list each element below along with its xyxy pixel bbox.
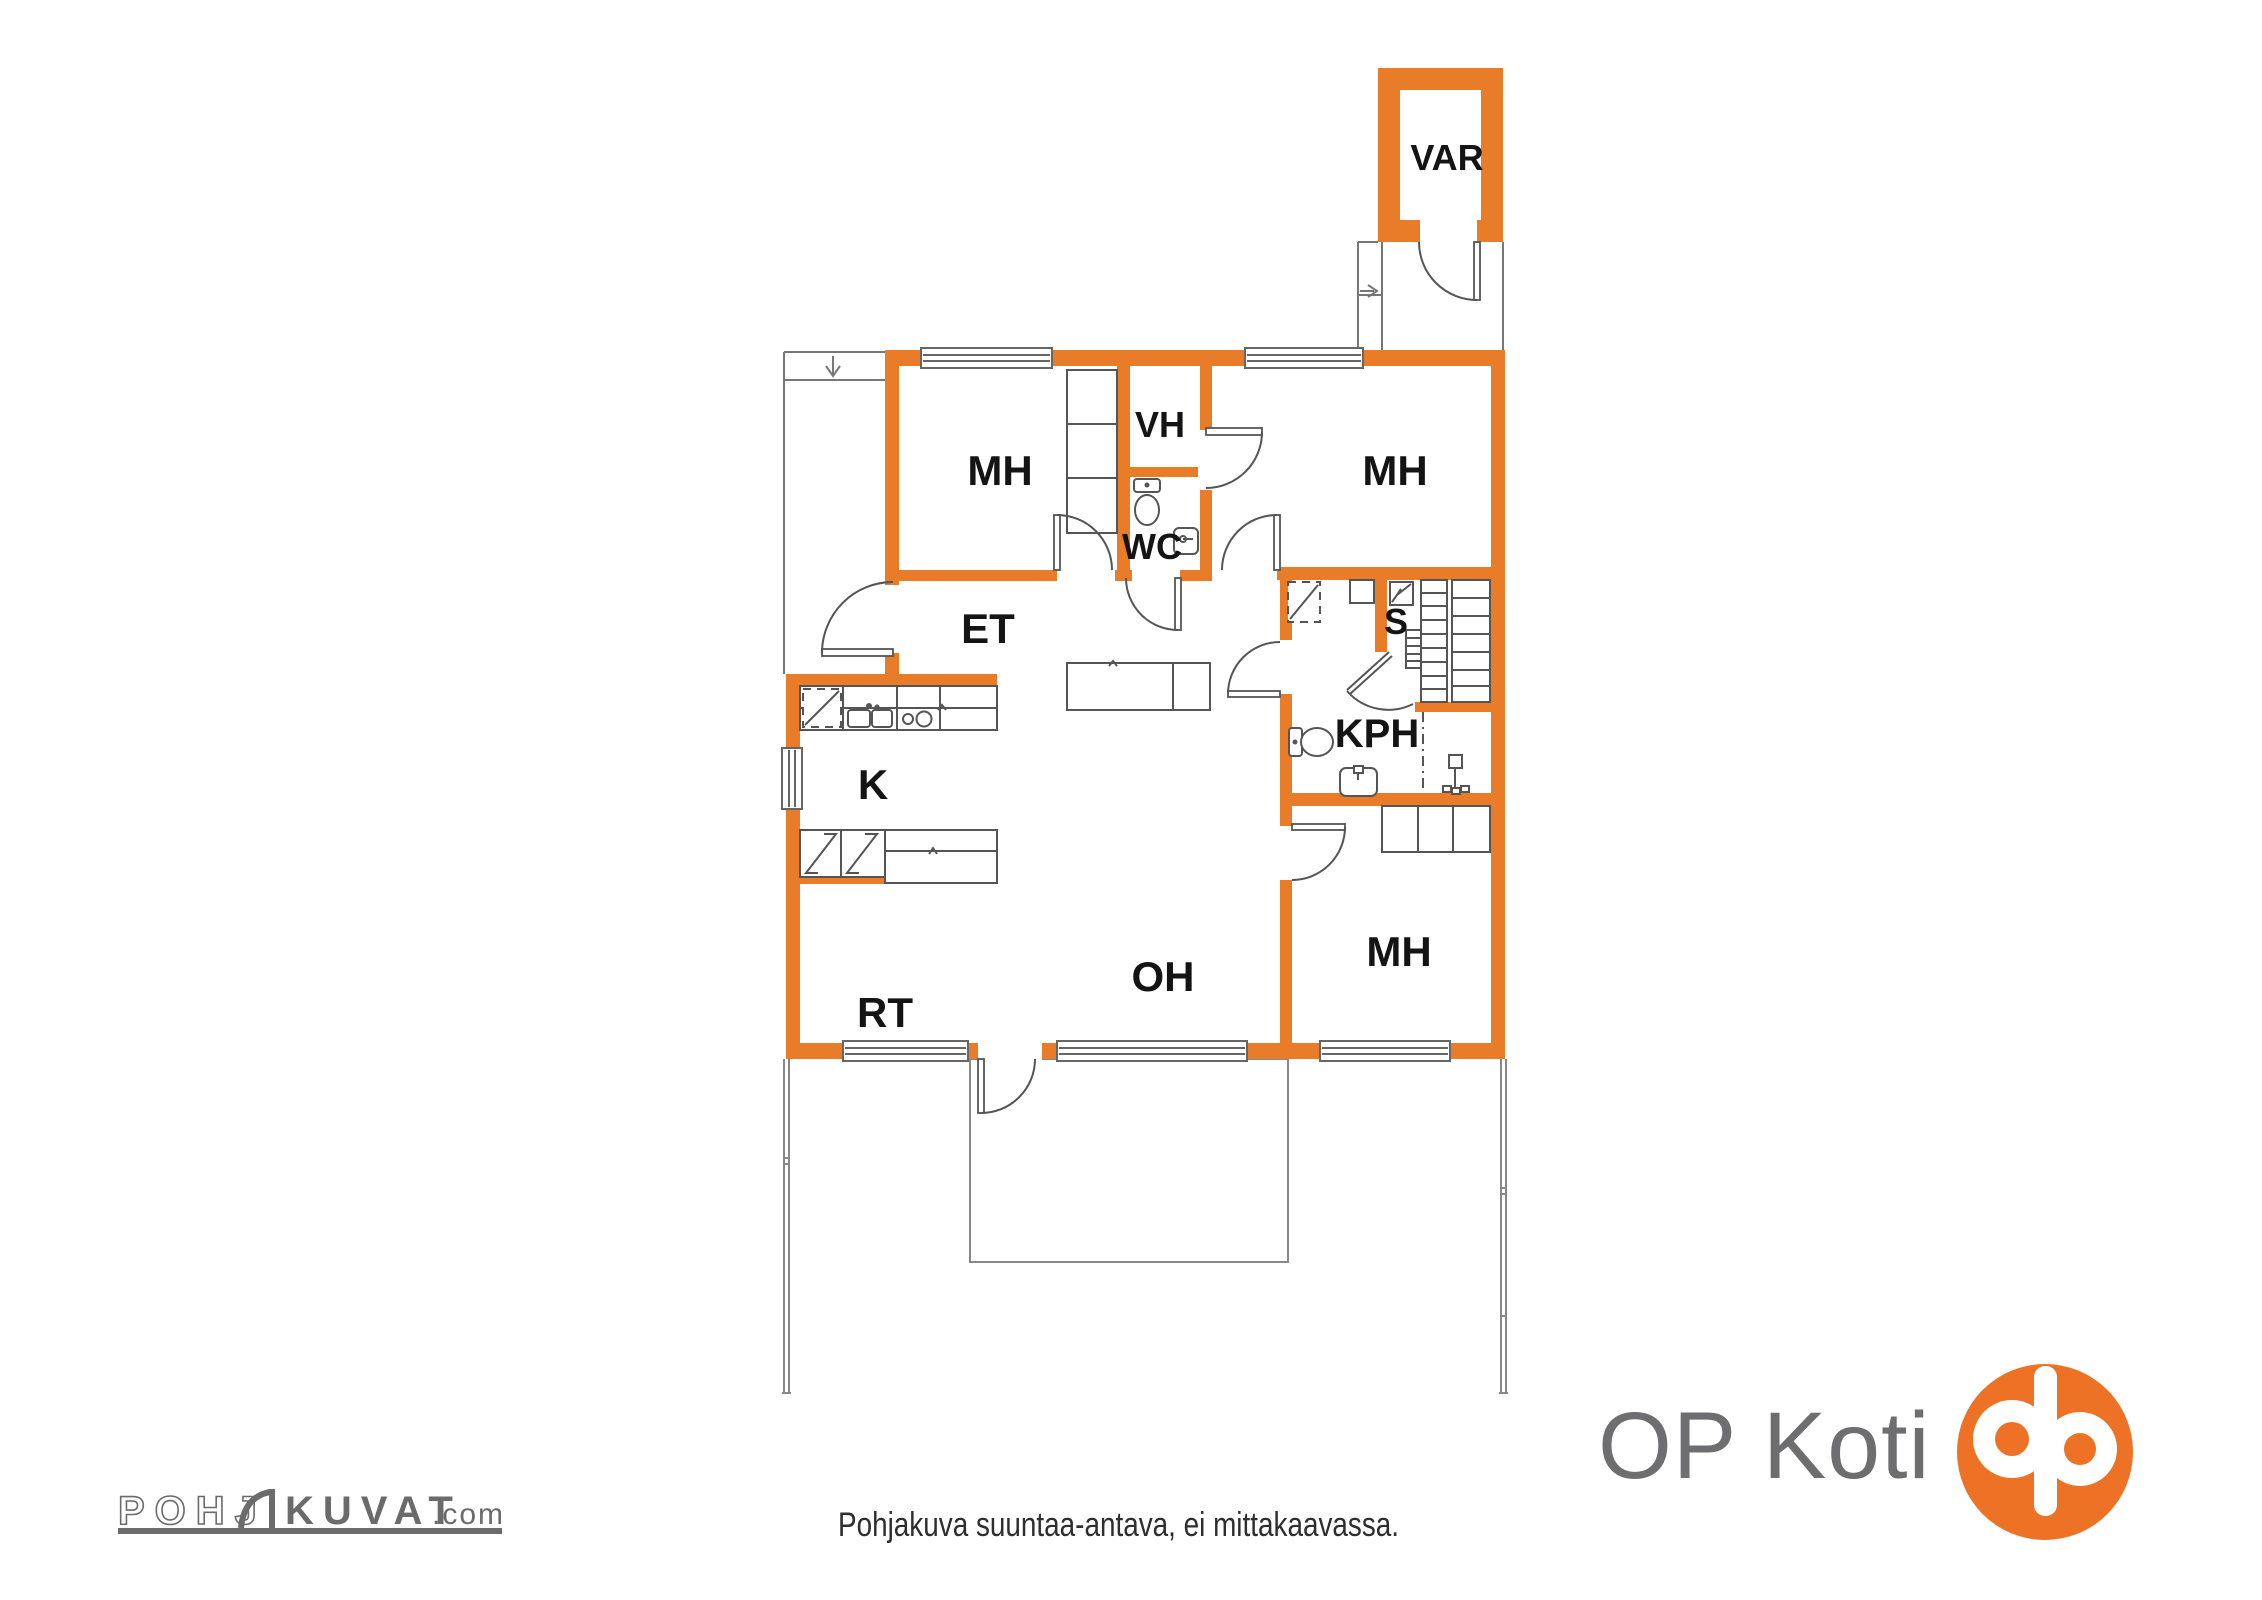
room-label-rt: RT xyxy=(857,989,913,1036)
room-label-mh-top-left: MH xyxy=(967,447,1032,494)
floorplan-drawing: VAR MH VH MH WC ET S K KPH RT OH MH POHJ… xyxy=(0,0,2262,1600)
kph-door-arc xyxy=(1228,642,1280,694)
washer-reservation xyxy=(1288,582,1320,622)
shower-icon xyxy=(1443,755,1469,794)
sauna-step xyxy=(1406,630,1421,668)
floorplan-page: VAR MH VH MH WC ET S K KPH RT OH MH POHJ… xyxy=(0,0,2262,1600)
room-label-s: S xyxy=(1384,601,1408,642)
vh-door-arc xyxy=(1206,432,1262,488)
kph-sink-icon xyxy=(1340,766,1377,796)
kph-cabinet xyxy=(1350,580,1374,603)
window-oh xyxy=(1057,1041,1247,1061)
room-label-et: ET xyxy=(961,605,1015,652)
mh-bottom-door-arc xyxy=(1292,827,1345,880)
op-koti-wordmark: OP Koti xyxy=(1598,1392,1931,1501)
fridge-reservation xyxy=(803,689,841,727)
window-mh-top-right xyxy=(1245,348,1363,368)
sauna-door xyxy=(1347,652,1413,710)
terrace-rail-right xyxy=(1499,1059,1508,1393)
kitchen-lower-cabinets xyxy=(800,830,997,883)
room-label-mh-bottom: MH xyxy=(1366,928,1431,975)
entrance-arrow-down-icon xyxy=(826,356,840,376)
wc-toilet-icon xyxy=(1134,479,1160,525)
room-label-wc: WC xyxy=(1122,526,1182,567)
window-rt xyxy=(843,1041,968,1061)
disclaimer-text: Pohjakuva suuntaa-antava, ei mittakaavas… xyxy=(838,1506,1399,1545)
entrance-walkway xyxy=(784,352,885,674)
pohjakuvat-logo-suffix: .com xyxy=(432,1498,505,1531)
terrace xyxy=(782,1059,1508,1393)
room-label-mh-top-right: MH xyxy=(1362,447,1427,494)
room-label-kph: KPH xyxy=(1335,712,1419,756)
room-label-var: VAR xyxy=(1410,137,1483,178)
kph-toilet-icon xyxy=(1289,728,1333,756)
porch-area xyxy=(1358,242,1503,350)
wardrobe-mh-top-left xyxy=(1067,370,1117,533)
et-entry-door-arc xyxy=(822,582,893,653)
sauna-benches xyxy=(1406,580,1490,702)
op-logo-icon xyxy=(1957,1364,2133,1540)
mh-top-right-door-arc xyxy=(1222,515,1277,570)
window-mh-top-left xyxy=(921,348,1052,368)
room-label-k: K xyxy=(858,761,888,808)
window-kitchen xyxy=(782,748,802,809)
pohjakuvat-logo: POHJ KUVAT .com xyxy=(118,1489,505,1534)
terrace-rail-left xyxy=(782,1059,791,1393)
wc-door-arc xyxy=(1126,578,1178,630)
room-label-vh: VH xyxy=(1135,404,1185,445)
terrace-door-arc xyxy=(981,1059,1035,1113)
patio-outline xyxy=(970,1059,1288,1262)
kitchen-counter xyxy=(800,686,997,730)
wardrobe-mh-bottom xyxy=(1382,806,1490,852)
room-label-oh: OH xyxy=(1132,953,1195,1000)
window-mh-bottom xyxy=(1320,1041,1450,1061)
var-door-arc xyxy=(1419,242,1477,300)
island-cabinet xyxy=(1067,661,1210,710)
pohjakuvat-underline xyxy=(118,1528,502,1534)
